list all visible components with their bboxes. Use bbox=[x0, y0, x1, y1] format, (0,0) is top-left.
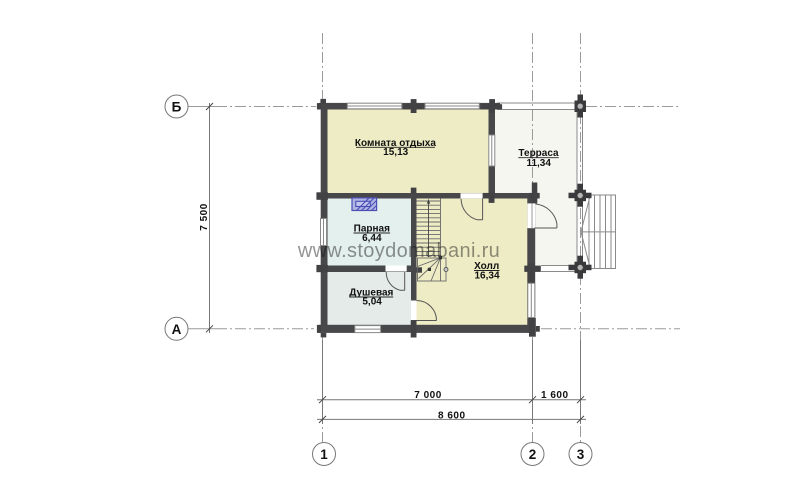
svg-text:Б: Б bbox=[172, 100, 182, 115]
svg-text:15,13: 15,13 bbox=[383, 147, 408, 158]
svg-text:А: А bbox=[172, 322, 182, 337]
svg-text:8 600: 8 600 bbox=[438, 410, 466, 421]
svg-text:7 000: 7 000 bbox=[414, 390, 442, 401]
svg-text:16,34: 16,34 bbox=[474, 271, 499, 282]
svg-text:1: 1 bbox=[320, 447, 328, 462]
svg-text:3: 3 bbox=[577, 447, 585, 462]
svg-text:1 600: 1 600 bbox=[541, 390, 569, 401]
svg-text:www.stoydomabani.ru: www.stoydomabani.ru bbox=[297, 240, 500, 262]
svg-text:2: 2 bbox=[529, 447, 537, 462]
svg-text:7 500: 7 500 bbox=[199, 203, 210, 231]
svg-text:5,04: 5,04 bbox=[362, 296, 382, 307]
svg-text:11,34: 11,34 bbox=[526, 158, 551, 169]
